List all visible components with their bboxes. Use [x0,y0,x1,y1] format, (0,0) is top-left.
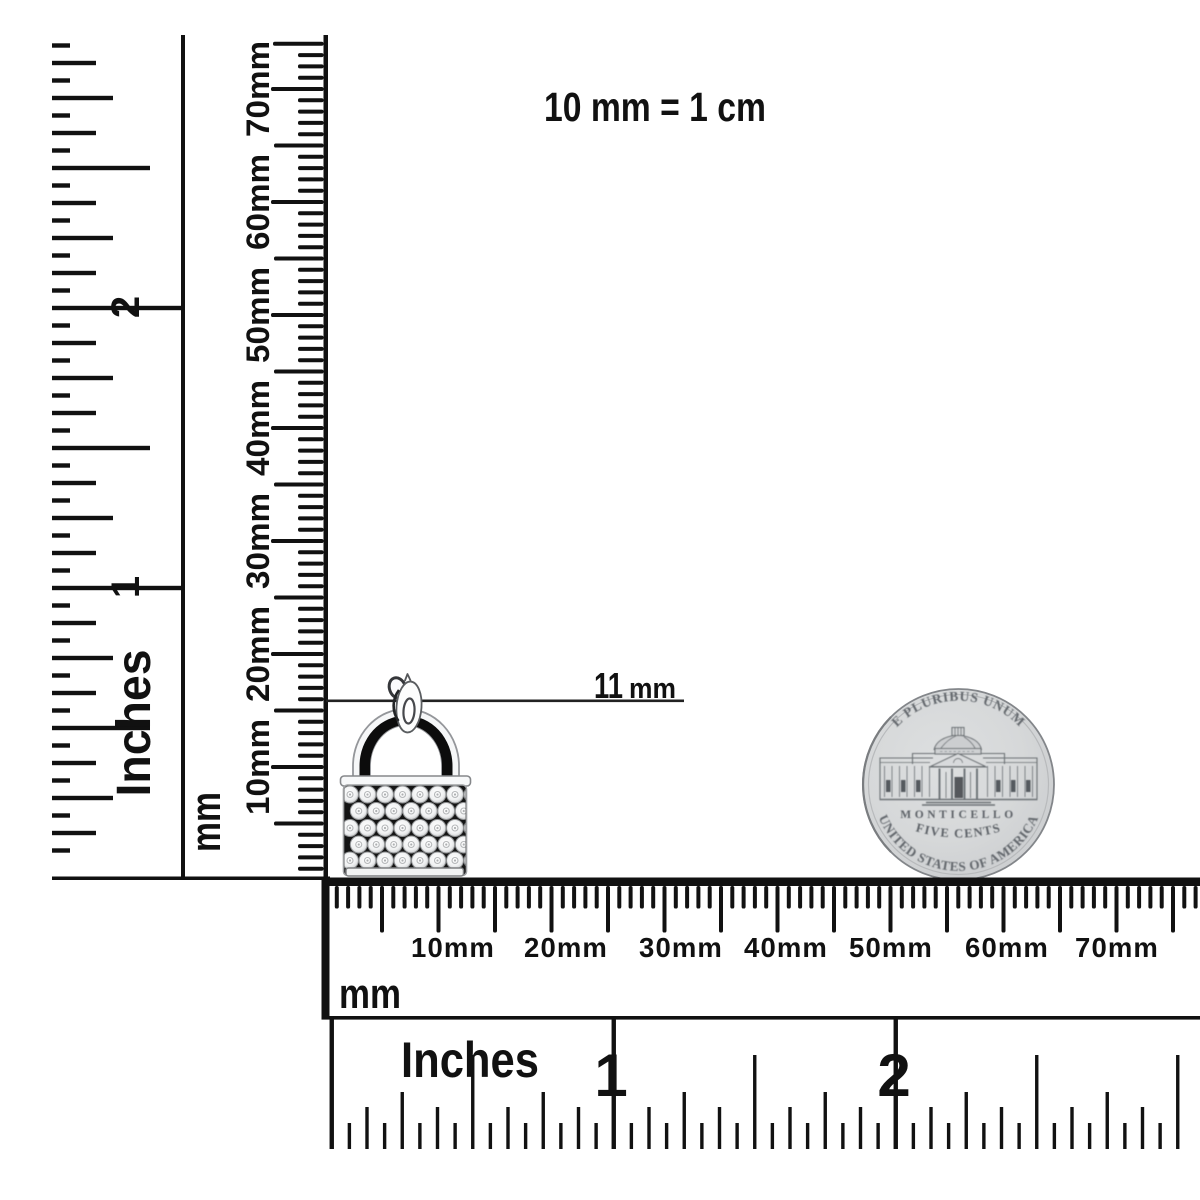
svg-text:mm: mm [629,673,676,705]
svg-text:40mm: 40mm [240,380,276,476]
svg-text:60mm: 60mm [240,154,276,250]
svg-text:1: 1 [594,1042,627,1109]
svg-text:40mm: 40mm [744,932,828,963]
svg-text:20mm: 20mm [240,606,276,702]
svg-text:70mm: 70mm [1075,932,1159,963]
svg-text:2: 2 [104,296,148,318]
svg-text:20mm: 20mm [524,932,608,963]
svg-text:60mm: 60mm [965,932,1049,963]
svg-text:11: 11 [594,665,623,706]
svg-text:mm: mm [182,792,229,852]
svg-text:MONTICELLO: MONTICELLO [900,809,1017,821]
svg-text:50mm: 50mm [240,267,276,363]
svg-text:mm: mm [339,970,401,1017]
svg-text:30mm: 30mm [240,493,276,589]
svg-text:10mm: 10mm [411,932,495,963]
svg-text:10 mm = 1 cm: 10 mm = 1 cm [544,84,766,130]
svg-text:50mm: 50mm [849,932,933,963]
svg-text:Inches: Inches [401,1032,539,1088]
svg-text:10mm: 10mm [240,719,276,815]
svg-text:2: 2 [877,1042,910,1109]
svg-text:Inches: Inches [108,650,161,797]
svg-text:70mm: 70mm [240,41,276,137]
svg-text:30mm: 30mm [639,932,723,963]
svg-text:1: 1 [104,576,148,598]
